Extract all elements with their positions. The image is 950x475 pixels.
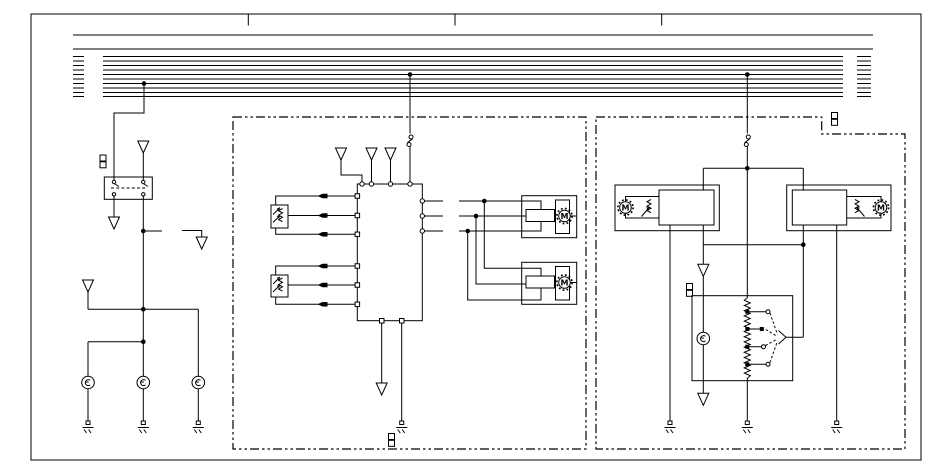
off-page-connector-icon (376, 383, 387, 395)
switch-contact (766, 362, 770, 366)
off-page-connector-icon (196, 237, 207, 249)
wiring-diagram: M M (0, 0, 950, 475)
off-page-connector-icon (698, 264, 709, 276)
junction-dot (745, 72, 750, 77)
junction-dot (142, 81, 147, 86)
ground-icon (396, 421, 407, 433)
wire (276, 75, 577, 422)
junction-dot (474, 214, 479, 219)
module-boundary (596, 117, 905, 449)
off-page-connector-icon (336, 148, 347, 160)
motor-icon: M (873, 200, 888, 215)
left-relay-circuit (82, 84, 208, 434)
switch-throw-dashes (766, 313, 778, 363)
connector-marker (687, 284, 693, 297)
wiring-diagram-page: M M (0, 0, 950, 475)
connector-marker (832, 113, 838, 126)
off-page-connector-icon (385, 148, 396, 160)
inline-connector-icon (744, 135, 750, 147)
motor-label: M (561, 279, 569, 288)
bulb-icon (82, 376, 95, 389)
center-control-module: M M (233, 75, 586, 450)
ground-icon (831, 421, 842, 433)
sensor-block (271, 275, 288, 297)
wire (88, 84, 202, 422)
bus-line-segmented (73, 57, 871, 97)
off-page-connector-icon (698, 393, 709, 405)
connector-marker (389, 434, 395, 447)
connector-marker (100, 155, 106, 168)
bus-line-full (73, 35, 873, 49)
switch-contact (762, 345, 766, 349)
bulb-icon (697, 332, 710, 345)
junction-dot (408, 72, 413, 77)
junction-dot (745, 166, 750, 171)
wire (626, 75, 882, 422)
ground-icon (193, 421, 204, 433)
junction-dot (801, 242, 806, 247)
junction-dots (141, 72, 806, 344)
resistor-icon (744, 296, 750, 381)
junction-dot (141, 307, 146, 312)
relay (104, 177, 152, 199)
inline-connector-icon (407, 135, 413, 147)
frame-tick (248, 14, 661, 26)
off-page-connector-icon (366, 148, 377, 160)
power-bus (73, 35, 873, 97)
ground-icon (742, 421, 753, 433)
junction-dot (141, 339, 146, 344)
motor-label: M (561, 212, 569, 221)
ground-icon (665, 421, 676, 433)
motor-icon: M (618, 200, 633, 215)
right-module: M M (596, 75, 905, 450)
control-unit-body (357, 184, 422, 321)
off-page-connector-icon (138, 141, 149, 153)
motor-label: M (877, 204, 885, 213)
bulb-icon (137, 376, 150, 389)
ground-icon (138, 421, 149, 433)
off-page-connector-icon (109, 217, 120, 229)
actuator-unit: M (787, 185, 891, 231)
wiper-arrow-icon (779, 331, 787, 345)
sensor-block (271, 205, 288, 228)
position-sensor-icon (642, 200, 652, 217)
resistor-switch-block (692, 296, 793, 381)
junction-dot (141, 229, 146, 234)
wire-connector-arrow-icon (318, 194, 328, 307)
bulb-icon (192, 376, 205, 389)
ground-icon (83, 421, 94, 433)
switch-contact (760, 327, 764, 331)
position-sensor-icon (855, 200, 865, 217)
actuator-unit: M (615, 185, 719, 231)
switch-contact (766, 310, 770, 314)
off-page-connector-icon (83, 280, 94, 292)
control-unit-block (355, 182, 424, 323)
motor-label: M (622, 204, 630, 213)
junction-dot (465, 229, 470, 234)
junction-dot (482, 199, 487, 204)
